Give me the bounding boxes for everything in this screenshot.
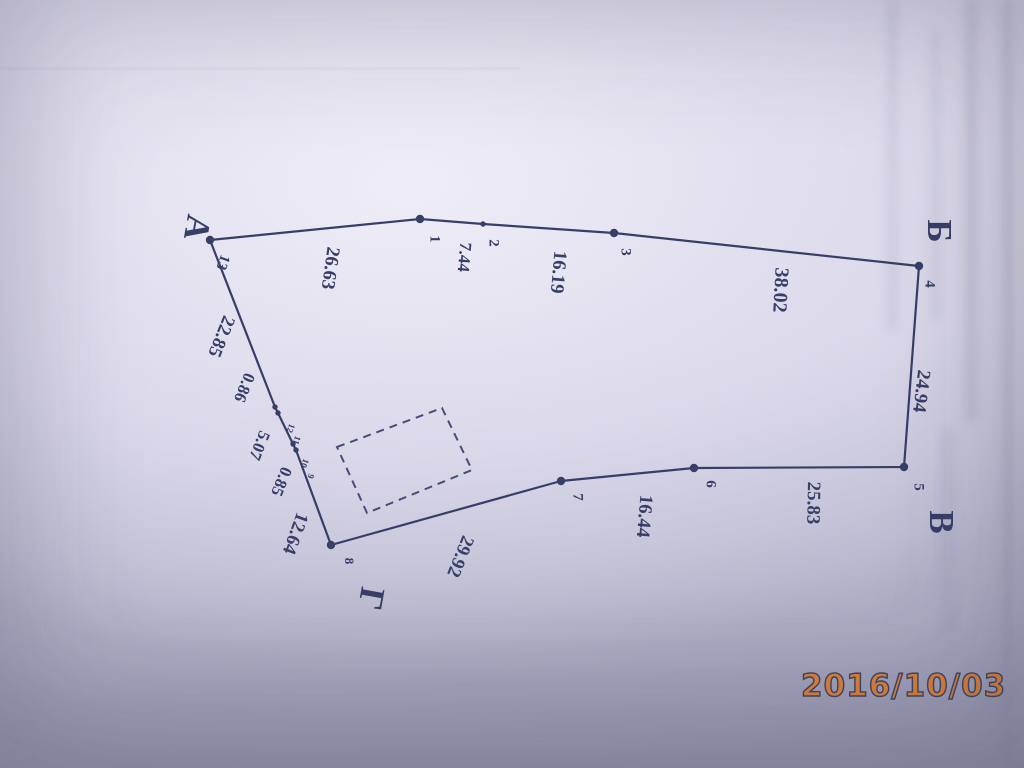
survey-point-dot bbox=[557, 477, 565, 485]
corner-letter-label: В bbox=[922, 510, 961, 533]
survey-point-dot-small bbox=[275, 410, 280, 415]
edge-length-label: 16.44 bbox=[632, 494, 657, 539]
edge-length-label: 5.07 bbox=[245, 428, 274, 463]
point-number-label: 1 bbox=[427, 235, 443, 243]
edge-length-label: 7.44 bbox=[454, 241, 476, 273]
building-outline-dashed bbox=[337, 408, 472, 513]
edge-length-label: 22.85 bbox=[203, 313, 238, 361]
edge-length-label: 24.94 bbox=[908, 369, 934, 414]
point-number-label: 2 bbox=[486, 239, 502, 247]
survey-point-dot bbox=[690, 464, 698, 472]
survey-plan-drawing: АБВГ22.850.865.070.8512.6426.637.4416.19… bbox=[0, 0, 1024, 768]
survey-point-dot bbox=[416, 215, 424, 223]
edge-length-label: 38.02 bbox=[768, 267, 792, 313]
survey-point-dot-small bbox=[293, 447, 298, 452]
point-number-label: 4 bbox=[922, 280, 938, 288]
survey-point-dot-small bbox=[272, 404, 277, 409]
point-number-label: 12 bbox=[284, 422, 297, 434]
camera-date-stamp: 2016/10/03 bbox=[801, 664, 1021, 708]
point-number-label: 7 bbox=[570, 493, 586, 501]
corner-letter-label: Г bbox=[350, 584, 392, 613]
edge-length-label: 0.86 bbox=[230, 370, 259, 405]
corner-letter-label: А bbox=[176, 212, 219, 244]
photo-of-survey-plan: АБВГ22.850.865.070.8512.6426.637.4416.19… bbox=[0, 0, 1024, 768]
point-number-label: 3 bbox=[618, 248, 634, 256]
edge-length-label: 29.92 bbox=[442, 533, 477, 581]
survey-point-dot bbox=[915, 262, 923, 270]
survey-point-dot bbox=[327, 541, 335, 549]
corner-letter-label: Б bbox=[920, 219, 959, 242]
point-number-label: 5 bbox=[911, 483, 927, 491]
survey-point-dot bbox=[610, 229, 618, 237]
survey-point-dot bbox=[900, 463, 908, 471]
edge-length-label: 0.85 bbox=[267, 464, 296, 499]
edge-length-label: 16.19 bbox=[546, 250, 571, 294]
point-number-label: 6 bbox=[703, 480, 719, 488]
edge-length-label: 25.83 bbox=[802, 481, 824, 524]
point-number-label: 8 bbox=[342, 558, 357, 565]
survey-point-dot-small bbox=[480, 221, 485, 226]
edge-length-label: 12.64 bbox=[278, 510, 313, 558]
edge-length-label: 26.63 bbox=[317, 246, 344, 291]
